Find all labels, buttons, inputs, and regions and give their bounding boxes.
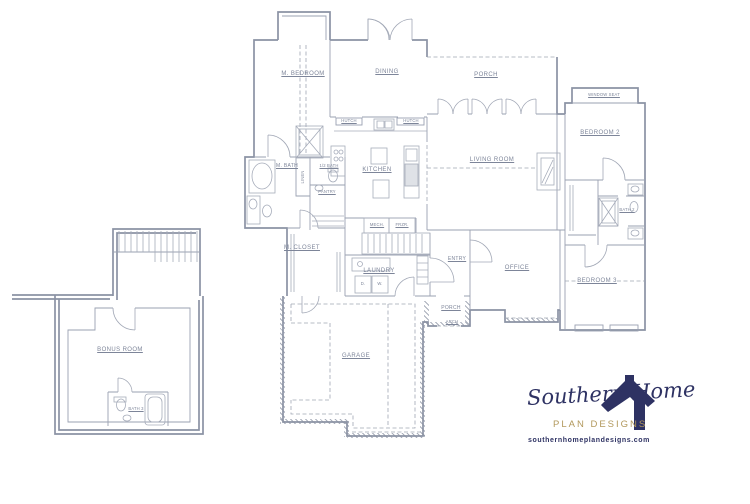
closet-label-frzr: FRZR.: [395, 223, 408, 227]
room-label-bedroom-3: BEDROOM 3: [577, 278, 617, 284]
hutch-label-left: HUTCH: [341, 119, 356, 123]
logo-website: southernhomeplandesigns.com: [528, 437, 650, 444]
room-label-window-seat: WINDOW SEAT: [588, 93, 620, 97]
appliance-label-dryer: D.: [361, 282, 366, 286]
closet-label-linen: LINEN: [301, 170, 305, 183]
room-label-garage: GARAGE: [342, 353, 370, 359]
room-label-laundry: LAUNDRY: [363, 268, 394, 274]
garage-left-wall-hatch: [280, 297, 285, 423]
room-label-bonus-room: BONUS ROOM: [97, 347, 143, 353]
interior-walls: [68, 16, 645, 426]
logo-subtitle: PLAN DESIGNS: [553, 419, 647, 430]
appliance-label-washer: W.: [377, 282, 382, 286]
room-label-m-closet: M. CLOSET: [284, 245, 320, 251]
room-label-bedroom-2: BEDROOM 2: [580, 130, 620, 136]
room-label-half-bath: 1/2 BATH: [319, 164, 338, 168]
room-label-entry: ENTRY: [448, 257, 466, 262]
exterior-walls: [12, 12, 645, 436]
room-label-dining: DINING: [375, 69, 398, 75]
garage-bottom-wall-hatch: [280, 419, 349, 424]
floor-plan-page: M. BEDROOM DINING PORCH LIVING ROOM WIND…: [0, 0, 750, 504]
room-label-living-room: LIVING ROOM: [470, 157, 514, 163]
room-label-porch-front: PORCH: [441, 306, 461, 311]
room-label-porch-rear: PORCH: [474, 72, 498, 78]
room-label-bath-3: BATH 3: [128, 407, 143, 411]
room-label-pantry: PANTRY: [318, 190, 336, 194]
room-label-bath-2: BATH 2: [619, 208, 634, 212]
office-bay-wall-hatch: [505, 318, 558, 322]
room-label-arch: ARCH: [446, 320, 458, 324]
room-label-m-bedroom: M. BEDROOM: [281, 71, 324, 77]
garage-right-wall-hatch: [420, 322, 425, 437]
room-label-kitchen: KITCHEN: [362, 167, 391, 173]
garage-bottom2-wall-hatch: [347, 433, 425, 438]
closet-label-mech: MECH.: [370, 223, 384, 227]
room-label-m-bath: M. BATH: [276, 164, 298, 169]
room-label-office: OFFICE: [505, 265, 529, 271]
hutch-label-right: HUTCH: [403, 119, 418, 123]
